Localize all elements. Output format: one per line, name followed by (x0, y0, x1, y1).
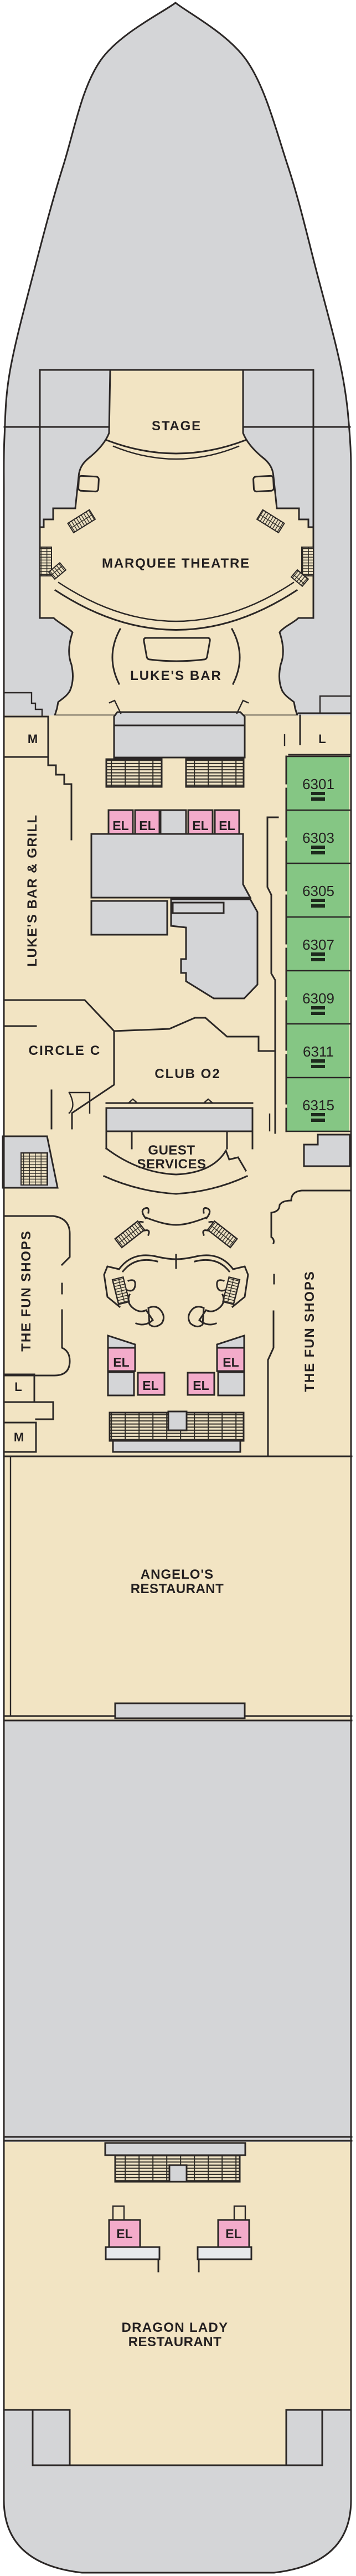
svg-text:DRAGON LADY: DRAGON LADY (122, 2320, 229, 2335)
svg-text:EL: EL (193, 1378, 209, 1393)
svg-text:LUKE'S BAR: LUKE'S BAR (130, 668, 222, 683)
svg-text:L: L (14, 1380, 22, 1394)
svg-text:EL: EL (139, 818, 155, 833)
svg-text:ANGELO'S: ANGELO'S (141, 1567, 214, 1582)
svg-text:EL: EL (112, 818, 128, 833)
svg-text:CLUB O2: CLUB O2 (154, 1067, 220, 1081)
svg-text:6311: 6311 (303, 1043, 334, 1060)
svg-text:EL: EL (223, 1355, 239, 1369)
svg-text:L: L (318, 732, 326, 746)
svg-text:EL: EL (192, 818, 208, 833)
svg-text:RESTAURANT: RESTAURANT (131, 1581, 224, 1596)
svg-text:6303: 6303 (302, 830, 334, 846)
svg-text:EL: EL (116, 2227, 132, 2241)
svg-text:LUKE'S BAR & GRILL: LUKE'S BAR & GRILL (25, 814, 40, 966)
svg-text:6301: 6301 (302, 776, 334, 792)
svg-text:EL: EL (142, 1378, 158, 1393)
svg-text:M: M (28, 732, 38, 746)
svg-text:EL: EL (219, 818, 235, 833)
svg-text:MARQUEE THEATRE: MARQUEE THEATRE (102, 556, 250, 571)
svg-text:GUEST: GUEST (148, 1143, 195, 1158)
svg-text:6309: 6309 (302, 990, 334, 1007)
svg-text:THE FUN SHOPS: THE FUN SHOPS (302, 1270, 317, 1392)
svg-text:EL: EL (113, 1355, 129, 1369)
svg-text:THE FUN SHOPS: THE FUN SHOPS (19, 1230, 34, 1351)
svg-text:6315: 6315 (302, 1097, 334, 1114)
svg-text:6307: 6307 (302, 936, 334, 953)
svg-text:RESTAURANT: RESTAURANT (128, 2335, 222, 2350)
svg-text:CIRCLE C: CIRCLE C (29, 1043, 101, 1058)
svg-text:6305: 6305 (302, 883, 334, 899)
svg-text:EL: EL (225, 2227, 241, 2241)
svg-text:M: M (14, 1430, 24, 1444)
svg-text:STAGE: STAGE (152, 419, 202, 434)
